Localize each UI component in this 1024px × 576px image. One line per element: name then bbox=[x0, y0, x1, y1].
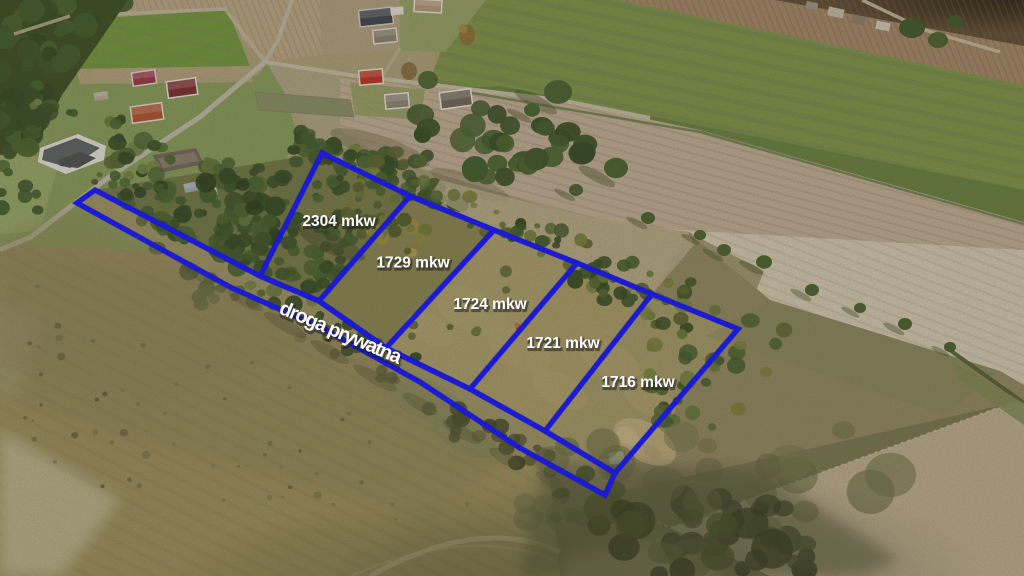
svg-text:2304 mkw: 2304 mkw bbox=[302, 213, 376, 230]
svg-text:1716 mkw: 1716 mkw bbox=[601, 374, 675, 391]
svg-text:1729 mkw: 1729 mkw bbox=[376, 255, 450, 272]
svg-text:1724 mkw: 1724 mkw bbox=[453, 296, 527, 313]
svg-text:1721 mkw: 1721 mkw bbox=[526, 335, 600, 352]
